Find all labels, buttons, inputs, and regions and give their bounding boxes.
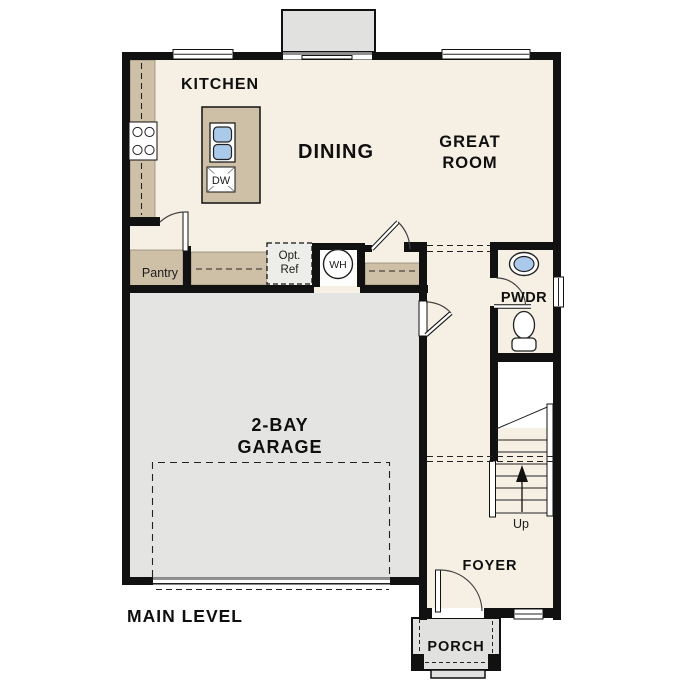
optional-fridge-label-2: Ref [281, 264, 300, 276]
water-heater: WH [324, 250, 353, 279]
powder-sink [510, 253, 539, 276]
powder-label: PWDR [501, 290, 547, 306]
plan-title: MAIN LEVEL [127, 606, 243, 626]
hall-wall-left-lower [419, 336, 427, 620]
exterior-wall-right [553, 52, 561, 620]
porch-post-right [488, 654, 500, 671]
floorplan-drawing: DW Opt. Ref WH [0, 0, 687, 687]
powder-wall-top [490, 242, 561, 250]
stair-rail-right [547, 404, 553, 516]
mud-bench [365, 263, 420, 285]
garage-floor [130, 293, 419, 577]
stairs-up-label: Up [513, 517, 529, 531]
stair-landing [498, 362, 553, 428]
kitchen-label: KITCHEN [181, 76, 259, 93]
hall-wall-left-upper [419, 242, 427, 301]
foyer-label: FOYER [463, 558, 518, 574]
pantry-wall-right [183, 246, 191, 286]
garage-label-1: 2-BAY [251, 415, 308, 435]
garage-label-2: GARAGE [237, 437, 322, 457]
porch-label: PORCH [427, 639, 484, 655]
stair-rail-left [490, 461, 496, 517]
optional-fridge: Opt. Ref [267, 243, 312, 284]
garage-wall-top-right [360, 285, 428, 293]
water-heater-label: WH [329, 259, 347, 271]
cooktop [129, 122, 157, 160]
pantry-wall-top [122, 217, 160, 226]
dishwasher: DW [207, 167, 235, 192]
toilet [512, 312, 536, 352]
island-sink [210, 123, 235, 162]
porch-post-left [412, 654, 424, 671]
porch-step [431, 670, 485, 678]
rear-patio-stoop [282, 10, 375, 52]
dishwasher-label: DW [212, 175, 231, 187]
powder-wall-bottom [490, 353, 561, 362]
floorplan-page: DW Opt. Ref WH [0, 0, 687, 687]
hall-wall-stub-left [357, 245, 372, 252]
optional-fridge-label-1: Opt. [279, 250, 301, 262]
great-room-label-2: ROOM [442, 154, 497, 172]
great-room-label-1: GREAT [439, 133, 501, 151]
pantry-label: Pantry [142, 266, 179, 280]
slider-door-leaf [302, 56, 352, 60]
garage-wall-top-left [122, 285, 314, 293]
powder-wall-left-upper [490, 242, 498, 278]
stair-wall-left [490, 362, 498, 461]
dining-label: DINING [298, 141, 374, 163]
